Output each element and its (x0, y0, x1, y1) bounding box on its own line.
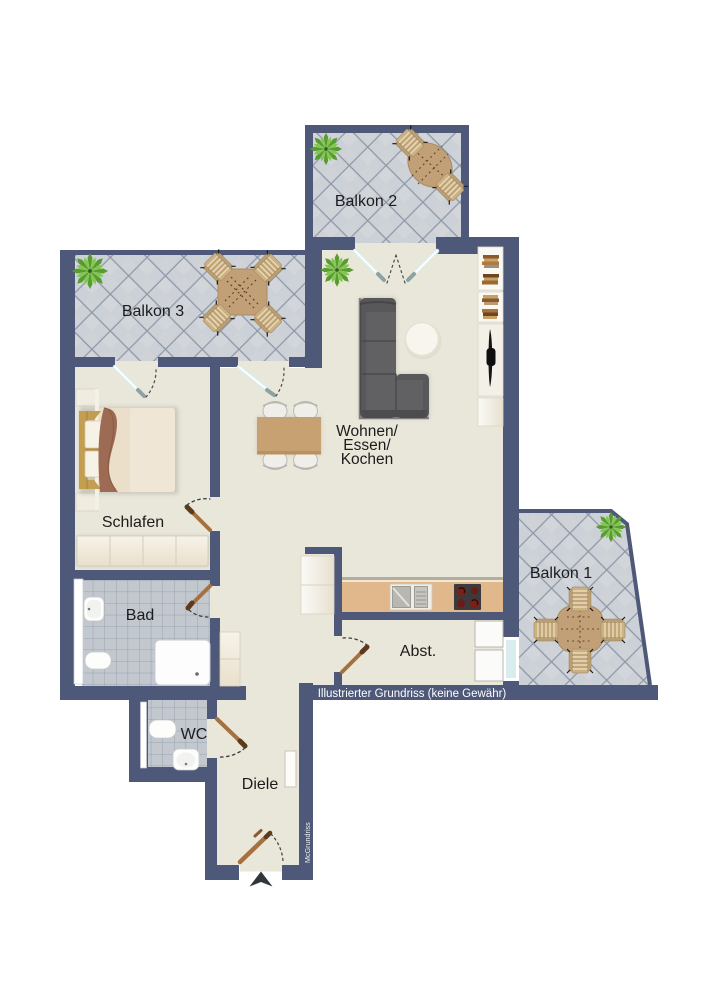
svg-text:McGrundriss: McGrundriss (303, 822, 312, 863)
svg-text:Kochen: Kochen (341, 451, 394, 468)
svg-text:Bad: Bad (126, 607, 154, 624)
svg-text:WC: WC (181, 726, 208, 743)
svg-text:Balkon 1: Balkon 1 (530, 565, 592, 582)
svg-text:Balkon 2: Balkon 2 (335, 193, 397, 210)
svg-text:Schlafen: Schlafen (102, 514, 164, 531)
svg-text:Illustrierter Grundriss (keine: Illustrierter Grundriss (keine Gewähr) (318, 688, 507, 700)
svg-text:Abst.: Abst. (400, 643, 436, 660)
svg-text:Balkon 3: Balkon 3 (122, 303, 184, 320)
svg-text:Diele: Diele (242, 776, 279, 793)
